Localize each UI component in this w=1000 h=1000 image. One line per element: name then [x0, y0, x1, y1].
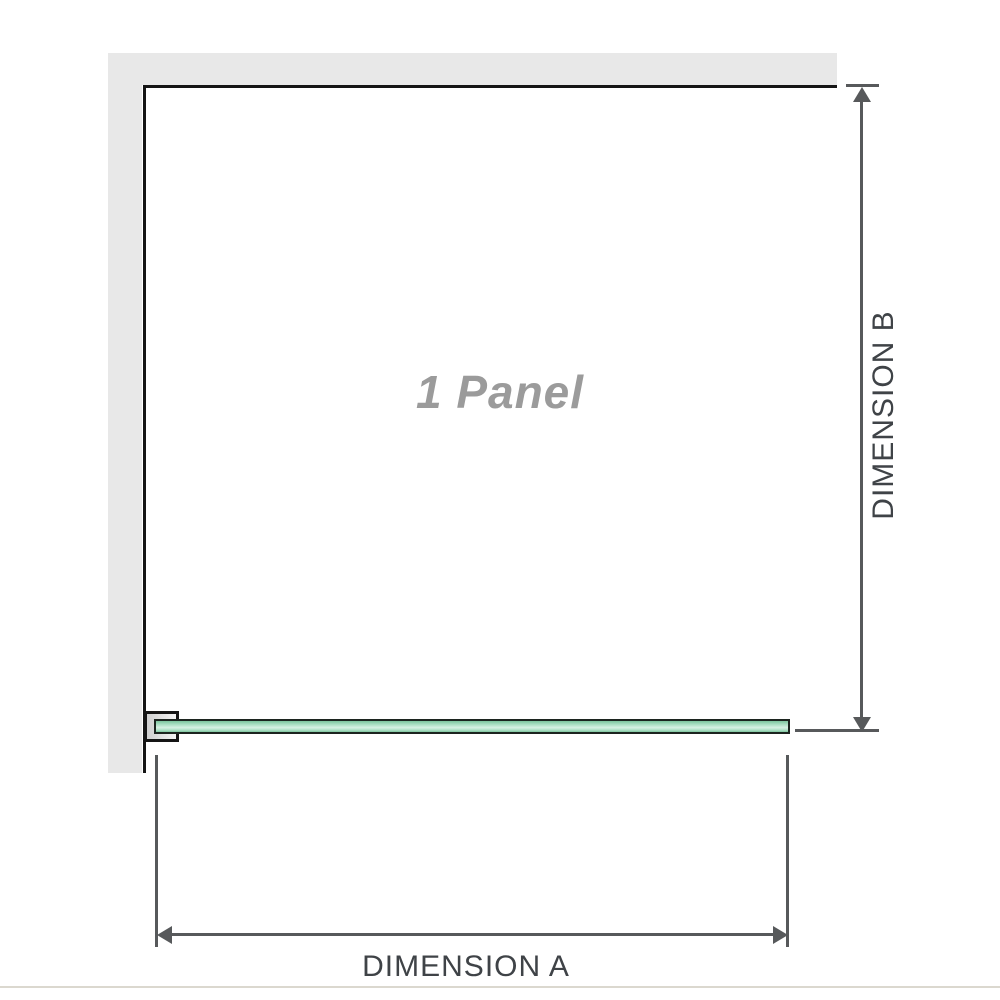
dimension-a-arrowhead-left-icon [157, 926, 172, 944]
page-separator-line [0, 986, 1000, 988]
enclosure-top-border [143, 85, 837, 88]
dimension-a-right-extension-line [786, 755, 789, 947]
dimension-b-label: DIMENSION B [866, 215, 902, 615]
dimension-a-label: DIMENSION A [316, 950, 616, 984]
enclosure-left-border [143, 85, 146, 773]
panel-count-label: 1 Panel [300, 365, 700, 419]
wall-left-segment [108, 53, 142, 773]
dimension-b-arrowhead-down-icon [853, 717, 871, 732]
dimension-a-arrowhead-right-icon [773, 926, 788, 944]
dimension-a-left-extension-line [155, 755, 158, 947]
panel-diagram: 1 Panel DIMENSION B DIMENSION A [0, 0, 1000, 1000]
dimension-b-arrow-line [860, 98, 863, 720]
dimension-a-arrow-line [168, 933, 776, 936]
glass-panel [154, 719, 790, 734]
wall-top-segment [108, 53, 837, 85]
dimension-b-arrowhead-up-icon [853, 87, 871, 102]
